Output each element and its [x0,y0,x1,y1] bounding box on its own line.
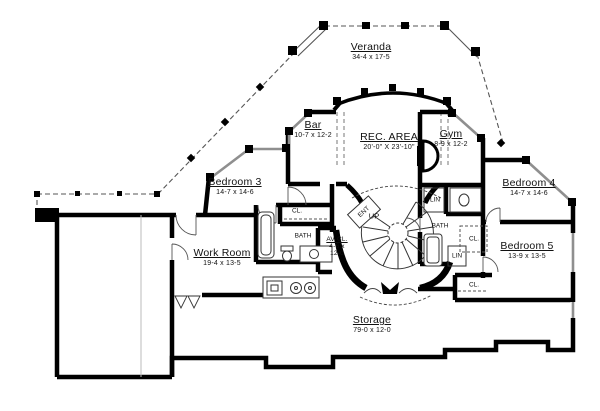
floor-plan: Veranda 34-4 x 17-5 Bar 10-7 x 12-2 REC.… [0,0,600,411]
room-label-storage: Storage 79-0 x 12-0 [353,314,391,334]
room-label-bedroom4: Bedroom 4 14-7 x 14-6 [502,177,555,197]
label-stair-up: UP [369,212,379,221]
label-linen-top: LIN [430,197,440,204]
label-closet-bath-left: CL. [292,208,302,215]
label-closet-bedroom5: CL. [469,282,479,289]
label-linen-bottom: LIN [452,253,462,260]
label-bath-left: BATH [295,233,312,240]
room-label-gym: Gym 8-9 x 12-2 [434,128,468,148]
room-label-bedroom3: Bedroom 3 14-7 x 14-6 [208,176,261,196]
laundry-counter-icons [263,277,319,298]
toilet-left-icon [281,246,293,261]
room-label-bar: Bar 10-7 x 12-2 [294,119,332,139]
bathtub-left-icon [258,212,274,258]
bathtub-right-icon [424,234,442,266]
room-label-av-closet: AV CL. 4-6 x 12-0 [326,236,347,257]
stair-wall-pier [381,282,399,294]
walls [35,112,573,377]
room-label-veranda: Veranda 34-4 x 17-5 [351,41,392,61]
sink-right-icon [450,188,481,212]
room-label-bedroom5: Bedroom 5 13-9 x 13-5 [500,240,553,260]
room-label-work-room: Work Room 19-4 x 13-5 [193,247,250,267]
room-label-rec-area: REC. AREA 20'-0" X 23'-10" [360,131,418,151]
wall-corner-block [35,208,59,222]
label-bath-right: BATH [432,223,449,230]
veranda-railing-posts [34,21,505,197]
double-door-leaves [175,296,200,308]
label-closet-bath-right: CL. [469,236,479,243]
floor-plan-drawing [0,0,600,411]
